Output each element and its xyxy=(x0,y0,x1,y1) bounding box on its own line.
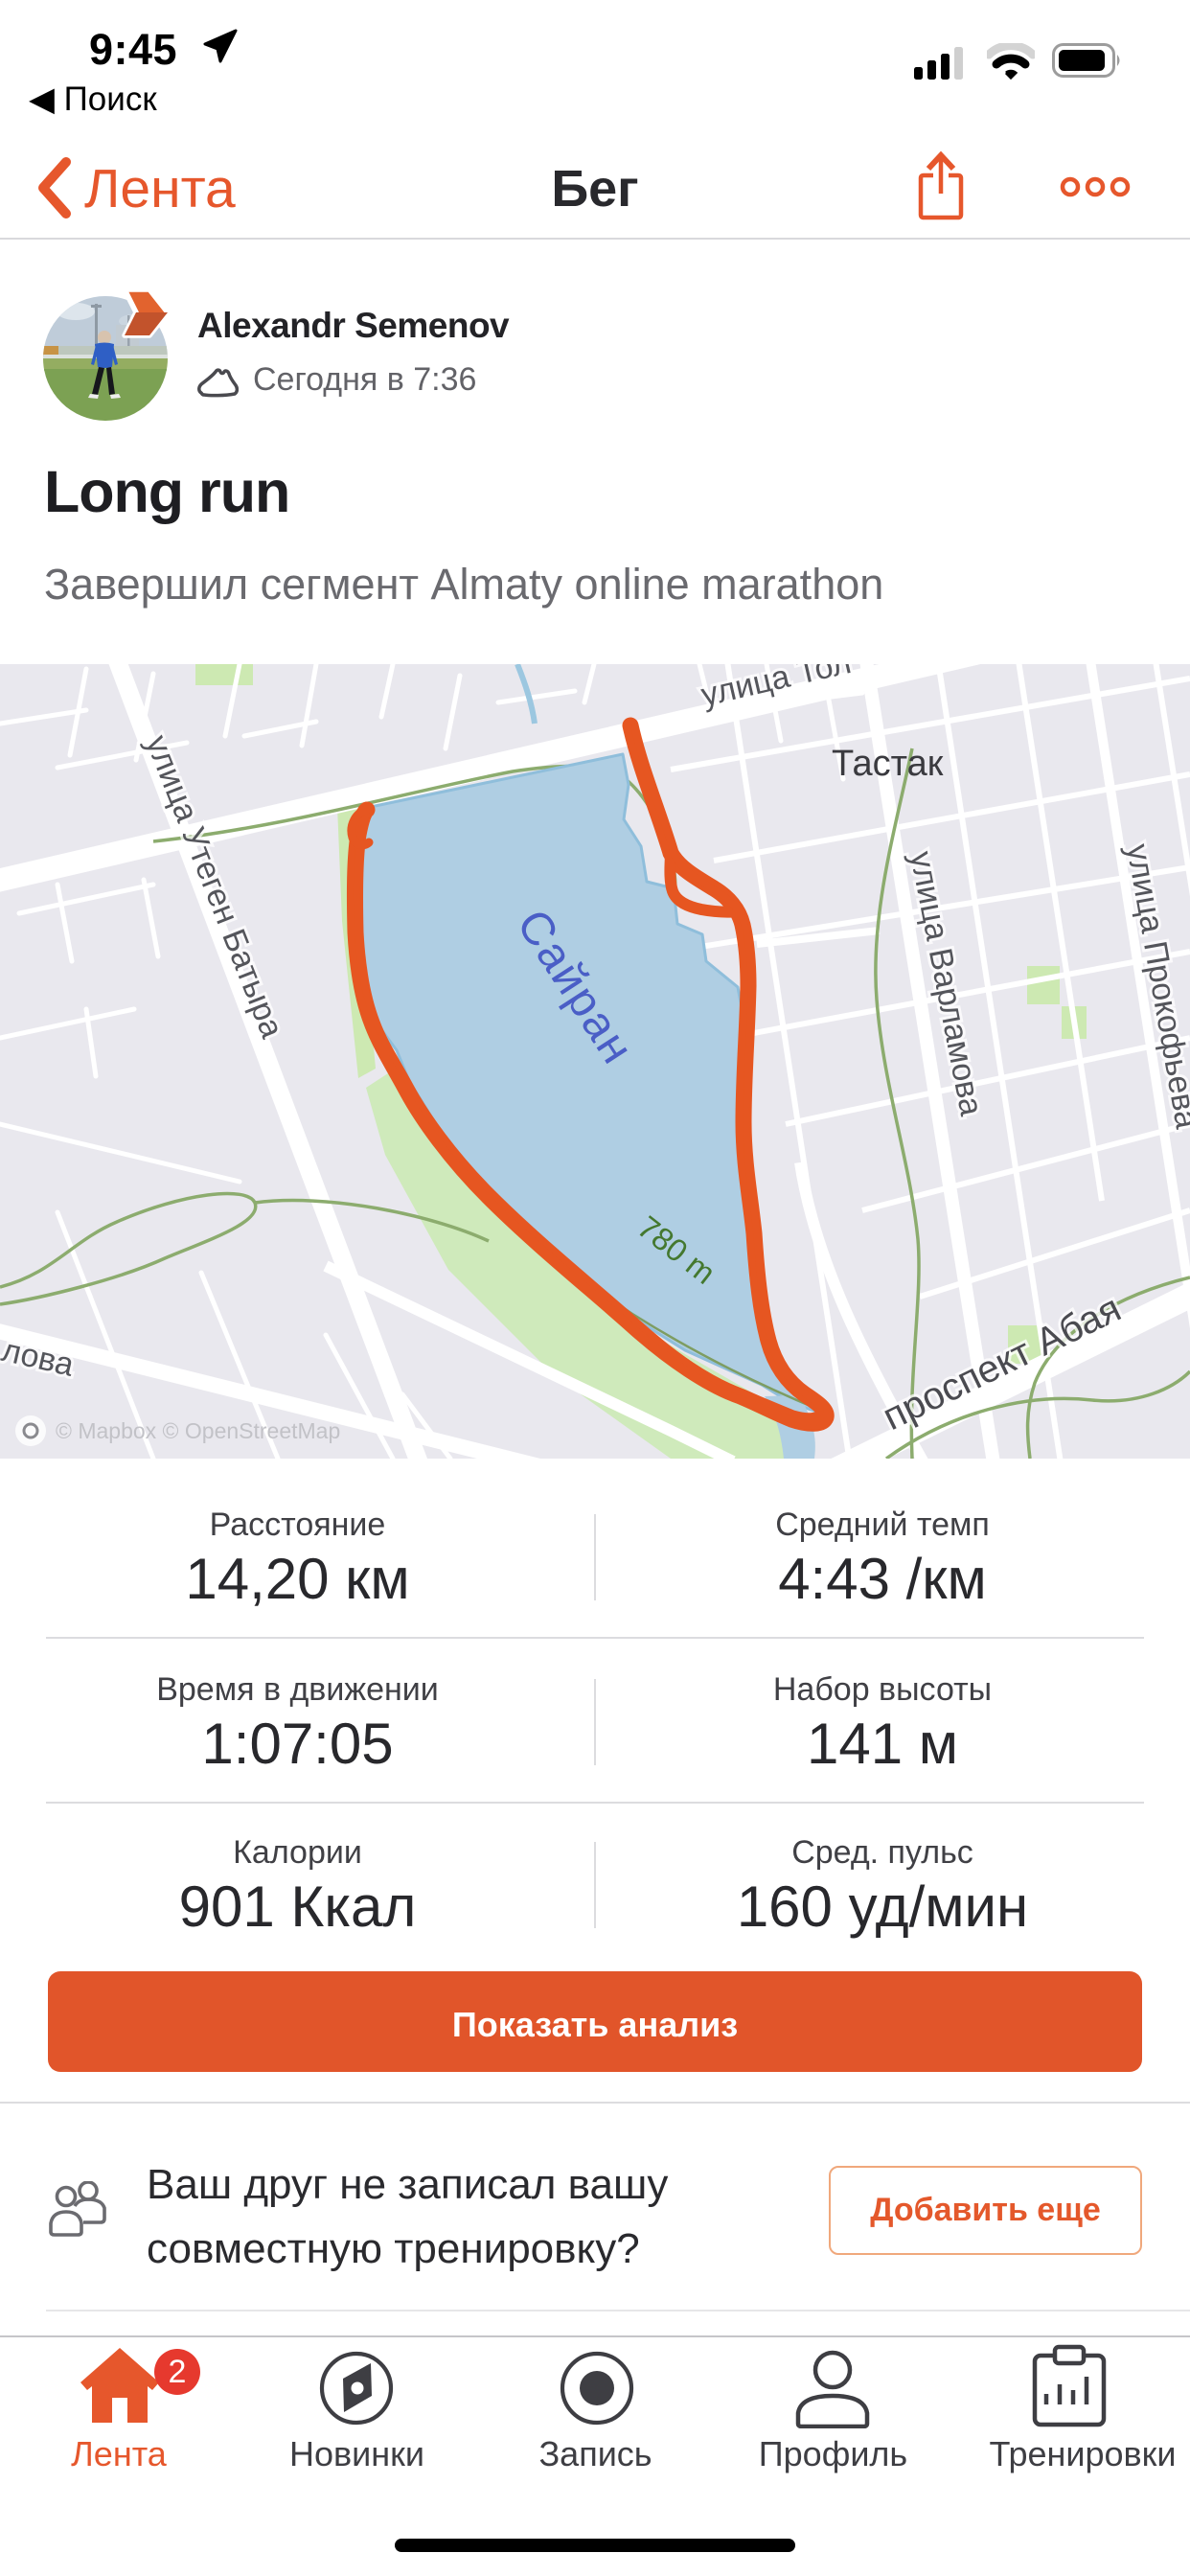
svg-text:Тастак: Тастак xyxy=(832,744,944,784)
svg-text:© Mapbox © OpenStreetMap: © Mapbox © OpenStreetMap xyxy=(56,1418,340,1443)
